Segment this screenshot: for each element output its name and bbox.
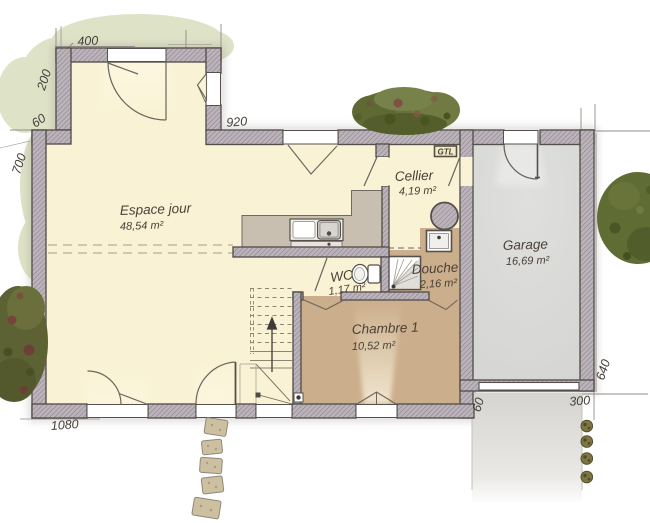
svg-text:GTL: GTL bbox=[438, 148, 454, 157]
svg-text:Chambre 1: Chambre 1 bbox=[352, 320, 419, 337]
svg-text:48,54 m²: 48,54 m² bbox=[120, 219, 164, 233]
svg-text:Espace jour: Espace jour bbox=[120, 201, 192, 218]
svg-text:16,69 m²: 16,69 m² bbox=[506, 254, 550, 268]
svg-text:Garage: Garage bbox=[503, 236, 549, 253]
svg-text:300: 300 bbox=[569, 393, 591, 408]
svg-text:10,52 m²: 10,52 m² bbox=[352, 339, 396, 353]
svg-text:2,16 m²: 2,16 m² bbox=[419, 277, 458, 291]
svg-text:920: 920 bbox=[226, 114, 248, 129]
svg-text:400: 400 bbox=[77, 33, 99, 48]
svg-text:1080: 1080 bbox=[50, 417, 79, 433]
svg-text:Douche: Douche bbox=[411, 260, 458, 277]
svg-text:4,19 m²: 4,19 m² bbox=[399, 185, 437, 198]
svg-text:Cellier: Cellier bbox=[395, 168, 434, 184]
